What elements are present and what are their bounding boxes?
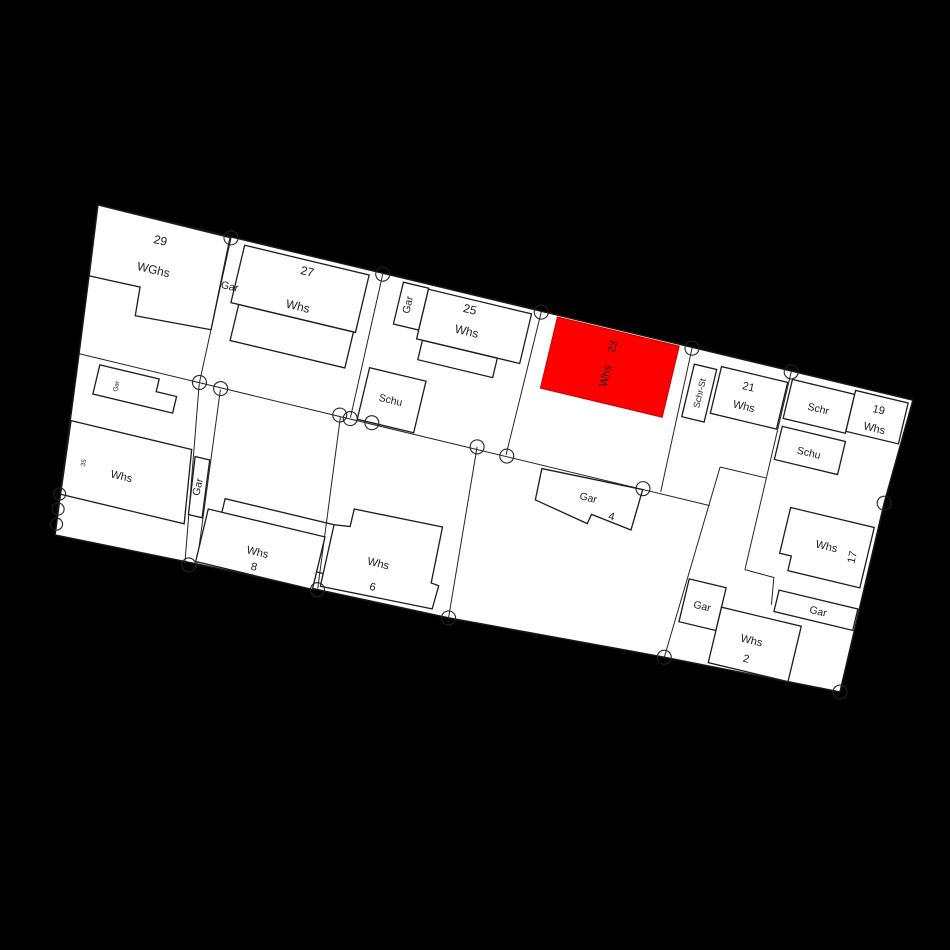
cadastral-map-viewport: 29 WGhs Gar 27 Whs Gar 25 Whs Schu 23 Wh… (0, 0, 950, 950)
cadastral-map: 29 WGhs Gar 27 Whs Gar 25 Whs Schu 23 Wh… (0, 0, 950, 950)
